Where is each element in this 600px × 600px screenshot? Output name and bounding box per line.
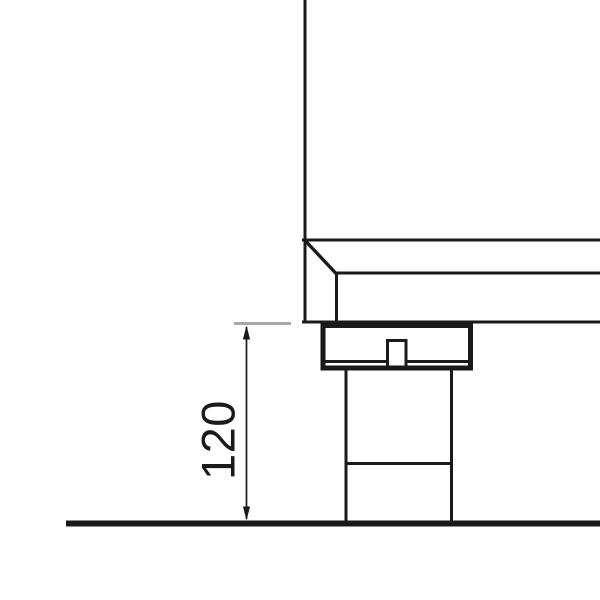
- dimension-annotation: 120: [192, 324, 292, 521]
- chamfer-line: [307, 242, 337, 274]
- dimension-arrow-up-icon: [243, 326, 250, 340]
- drawing-canvas: 120: [0, 0, 600, 600]
- bracket-clip-tab: [388, 341, 407, 368]
- leveling-foot: [323, 326, 471, 522]
- dimension-label: 120: [192, 400, 245, 480]
- cabinet-outline: [304, 0, 600, 322]
- dimension-arrow-down-icon: [243, 507, 250, 521]
- cabinet-foot-technical-drawing: 120: [0, 0, 600, 600]
